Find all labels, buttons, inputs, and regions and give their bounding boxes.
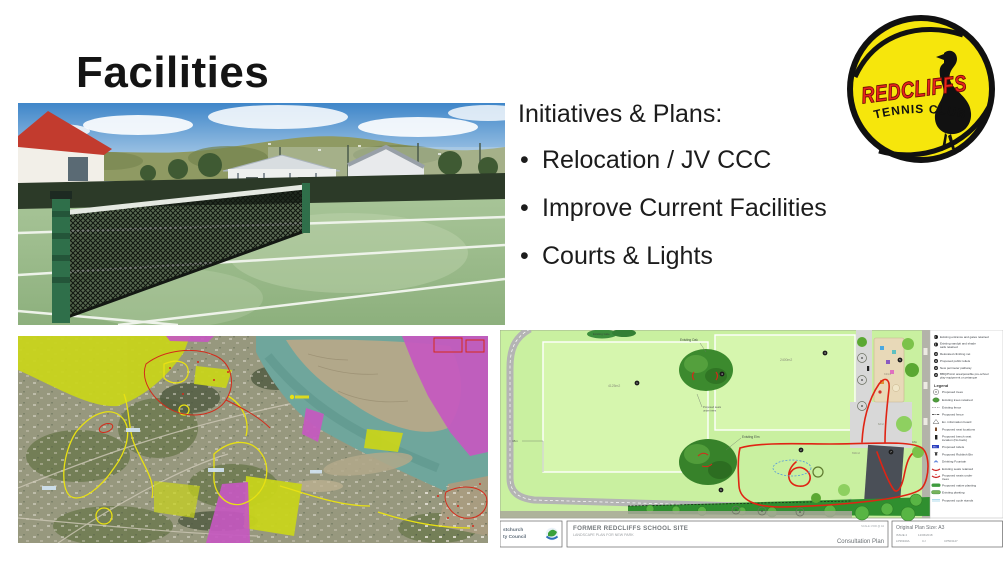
list-item: •Relocation / JV CCC (518, 145, 833, 176)
svg-text:trees: trees (942, 477, 949, 481)
existing-elm-tree (679, 439, 737, 485)
building (864, 445, 904, 505)
landscape-plan: 1 2 3 4 5 6 7 Existing Gate Existing Oak… (500, 330, 1003, 550)
svg-text:Relocated climbing net: Relocated climbing net (940, 352, 971, 356)
list-item: •Courts & Lights (518, 241, 833, 272)
legend-heading: Legend (934, 383, 949, 388)
landscape-plan-svg: 1 2 3 4 5 6 7 Existing Gate Existing Oak… (500, 330, 1003, 550)
existing-planting-icon (932, 491, 941, 494)
svg-text:Proposed trees: Proposed trees (942, 390, 963, 394)
svg-text:Existing planting: Existing planting (942, 491, 965, 495)
existing-tree-icon (933, 398, 939, 402)
aerial-map (18, 336, 488, 543)
svg-text:Proposed toilets: Proposed toilets (942, 445, 965, 449)
rubbish-bin-icon (935, 453, 937, 456)
bench-icon (935, 435, 937, 440)
club-logo-svg: REDCLIFFS TENNIS CLUB (845, 13, 997, 165)
native-planting-icon (932, 484, 941, 487)
svg-text:Existing trees retained: Existing trees retained (942, 398, 973, 402)
svg-text:Drinking Fountain: Drinking Fountain (942, 460, 967, 464)
svg-text:New perimeter pathway: New perimeter pathway (940, 366, 972, 370)
svg-text:CJ: CJ (922, 539, 926, 543)
plan-size: Original Plan Size: A3 (896, 525, 945, 531)
svg-text:CP503127: CP503127 (944, 539, 958, 543)
legend-panel: 8 Existing entrance and gates retained 9… (930, 330, 1003, 518)
svg-text:Ex. information board: Ex. information board (942, 420, 972, 424)
svg-text:Proposed fence: Proposed fence (942, 413, 964, 417)
aerial-map-svg (18, 336, 488, 543)
page-title: Facilities (76, 48, 269, 98)
council-name: stchurch (503, 527, 523, 533)
initiatives-heading: Initiatives & Plans: (518, 100, 833, 129)
svg-text:LP36940A: LP36940A (896, 539, 910, 543)
plan-type: Consultation Plan (837, 539, 884, 545)
svg-text:under trees: under trees (703, 409, 717, 413)
council-logo-icon (546, 528, 558, 540)
svg-text:Proposed native planting: Proposed native planting (942, 484, 976, 488)
plan-titleblock: stchurch ty Council FORMER REDCLIFFS SCH… (500, 521, 1003, 547)
svg-text:Proposed seats: Proposed seats (703, 405, 722, 409)
initiatives-list: •Relocation / JV CCC •Improve Current Fa… (518, 145, 833, 272)
svg-text:Proposed seat locations: Proposed seat locations (942, 428, 975, 432)
svg-text:Proposed public toilets: Proposed public toilets (940, 359, 971, 363)
svg-text:sails retained: sails retained (940, 345, 958, 349)
club-logo: REDCLIFFS TENNIS CLUB (845, 13, 997, 165)
svg-text:Existing Gate: Existing Gate (593, 332, 610, 336)
svg-text:location (No back): location (No back) (942, 438, 967, 442)
plan-title: FORMER REDCLIFFS SCHOOL SITE (573, 525, 688, 532)
bullet-text: Improve Current Facilities (542, 194, 827, 222)
bullet-glyph: • (520, 241, 529, 272)
svg-text:340m2: 340m2 (884, 374, 892, 376)
seat-icon (935, 428, 937, 432)
initiatives-block: Initiatives & Plans: •Relocation / JV CC… (518, 100, 833, 289)
existing-oak-tree (679, 349, 733, 391)
bullet-glyph: • (520, 145, 529, 176)
net-post (50, 191, 72, 323)
svg-text:ISSUE 2: ISSUE 2 (896, 533, 907, 537)
bullet-glyph: • (520, 193, 529, 224)
svg-text:Proposed cycle stands: Proposed cycle stands (942, 499, 974, 503)
plan-scale: SCALE 1:500 @ A3 (861, 524, 884, 528)
svg-text:62m2: 62m2 (878, 424, 884, 426)
svg-text:Existing entrance and gates re: Existing entrance and gates retained (940, 335, 989, 339)
list-item: •Improve Current Facilities (518, 193, 833, 224)
svg-text:Existing seats retained: Existing seats retained (942, 467, 973, 471)
plan-subtitle: LANDSCAPE PLAN FOR NEW PARK (573, 533, 634, 537)
bullet-text: Relocation / JV CCC (542, 146, 771, 174)
bullet-text: Courts & Lights (542, 242, 713, 270)
svg-text:WC: WC (933, 447, 937, 449)
svg-text:690m2: 690m2 (852, 451, 860, 455)
svg-text:18m: 18m (912, 440, 917, 444)
svg-text:4125m2: 4125m2 (608, 384, 620, 388)
svg-text:Proposed Rubbish Bin: Proposed Rubbish Bin (942, 453, 973, 457)
svg-text:ty Council: ty Council (503, 534, 526, 540)
svg-text:2400m2: 2400m2 (780, 358, 792, 362)
presentation-slide: Facilities (0, 0, 1003, 565)
svg-text:play equipment or petanque: play equipment or petanque (940, 376, 978, 380)
svg-text:Existing Oak: Existing Oak (680, 338, 698, 342)
svg-text:Existing Elm: Existing Elm (742, 435, 760, 439)
svg-text:Existing fence: Existing fence (942, 406, 962, 410)
svg-text:38m: 38m (512, 439, 518, 443)
tennis-court-photo-svg (18, 103, 505, 325)
tennis-court-photo (18, 103, 505, 325)
svg-text:12/06/2018: 12/06/2018 (918, 533, 933, 537)
